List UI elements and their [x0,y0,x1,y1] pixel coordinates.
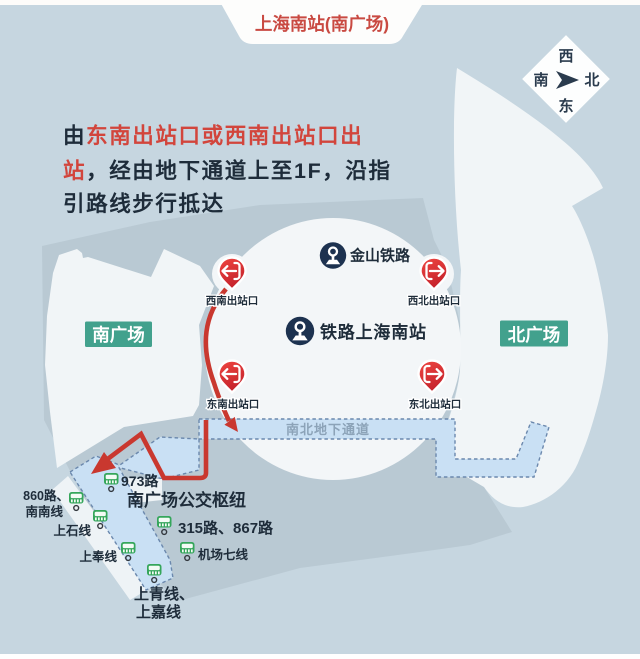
svg-text:南: 南 [533,71,548,89]
svg-text:东: 东 [558,97,573,115]
svg-text:北广场: 北广场 [508,325,561,345]
svg-text:南南线: 南南线 [25,504,63,519]
svg-text:机场七线: 机场七线 [198,547,249,562]
svg-text:铁路上海南站: 铁路上海南站 [320,322,427,342]
svg-text:上嘉线: 上嘉线 [136,603,181,621]
svg-text:西北出站口: 西北出站口 [408,294,461,307]
svg-text:西: 西 [558,48,573,65]
svg-text:860路、: 860路、 [23,488,69,503]
svg-text:上奉线: 上奉线 [79,549,117,564]
svg-text:315路、867路: 315路、867路 [178,519,274,537]
svg-text:上海南站(南广场): 上海南站(南广场) [255,14,389,34]
svg-text:金山铁路: 金山铁路 [349,247,411,265]
svg-text:南广场公交枢纽: 南广场公交枢纽 [127,490,246,510]
svg-text:东北出站口: 东北出站口 [409,398,462,411]
svg-text:由东南出站口或西南出站口出: 由东南出站口或西南出站口出 [63,123,363,148]
svg-text:973路: 973路 [121,473,159,489]
svg-text:站，经由地下通道上至1F，沿指: 站，经由地下通道上至1F，沿指 [63,158,392,183]
svg-text:上石线: 上石线 [53,523,91,538]
svg-text:引路线步行抵达: 引路线步行抵达 [63,191,225,216]
svg-text:东南出站口: 东南出站口 [207,398,260,411]
svg-text:西南出站口: 西南出站口 [206,294,259,307]
svg-text:北: 北 [584,72,599,89]
svg-text:南北地下通道: 南北地下通道 [286,422,370,437]
svg-text:上青线、: 上青线、 [134,585,194,603]
svg-text:南广场: 南广场 [92,325,145,345]
